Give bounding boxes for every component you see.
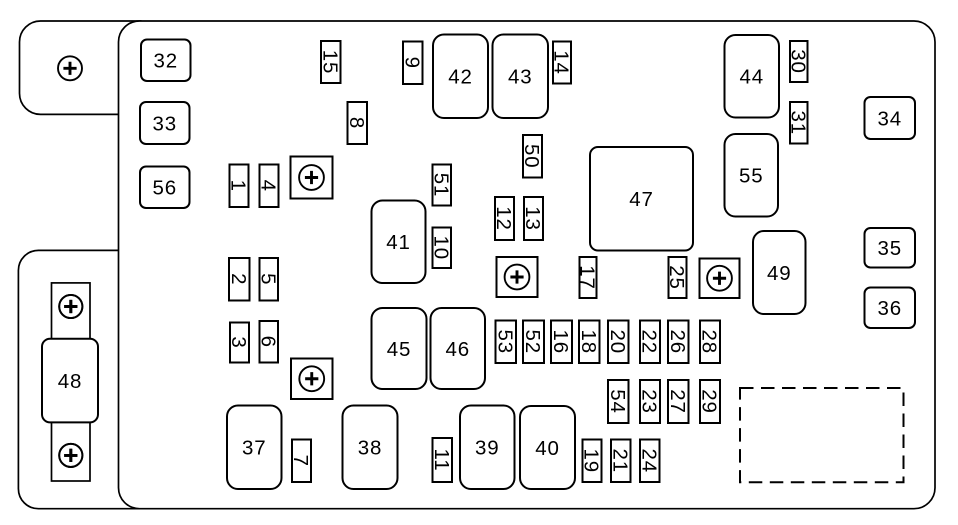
svg-text:36: 36 (877, 297, 902, 320)
svg-text:55: 55 (739, 165, 764, 188)
svg-text:40: 40 (535, 437, 560, 460)
svg-text:51: 51 (429, 173, 452, 198)
svg-text:14: 14 (550, 50, 573, 75)
svg-text:30: 30 (786, 49, 809, 74)
svg-text:54: 54 (606, 389, 629, 414)
svg-text:7: 7 (289, 455, 312, 467)
svg-text:46: 46 (445, 338, 470, 361)
svg-text:1: 1 (227, 180, 250, 192)
svg-text:53: 53 (493, 329, 516, 354)
svg-text:52: 52 (521, 329, 544, 354)
svg-text:2: 2 (227, 273, 250, 285)
svg-text:11: 11 (430, 448, 453, 471)
svg-text:43: 43 (508, 66, 533, 89)
svg-text:22: 22 (638, 329, 661, 354)
svg-text:16: 16 (549, 329, 572, 354)
svg-text:32: 32 (153, 50, 178, 73)
svg-text:39: 39 (475, 437, 500, 460)
svg-text:9: 9 (400, 57, 423, 69)
svg-text:41: 41 (386, 231, 411, 254)
svg-text:26: 26 (666, 329, 689, 354)
svg-text:23: 23 (638, 389, 661, 414)
svg-text:34: 34 (877, 107, 902, 130)
svg-text:10: 10 (429, 235, 452, 260)
svg-text:21: 21 (608, 448, 631, 473)
svg-text:17: 17 (576, 265, 599, 290)
svg-text:49: 49 (767, 262, 792, 285)
svg-text:15: 15 (318, 50, 341, 75)
svg-text:47: 47 (629, 188, 654, 211)
svg-text:6: 6 (256, 336, 279, 348)
svg-text:5: 5 (256, 273, 279, 285)
svg-text:29: 29 (698, 389, 721, 414)
svg-text:12: 12 (492, 206, 515, 231)
svg-text:24: 24 (637, 448, 660, 473)
svg-text:3: 3 (227, 336, 250, 348)
svg-text:20: 20 (606, 329, 629, 354)
svg-text:45: 45 (387, 338, 412, 361)
svg-text:13: 13 (521, 206, 544, 231)
svg-text:35: 35 (877, 237, 902, 260)
svg-text:4: 4 (257, 180, 280, 192)
svg-text:38: 38 (358, 437, 383, 460)
svg-text:18: 18 (577, 329, 600, 354)
svg-text:25: 25 (665, 265, 688, 290)
svg-text:33: 33 (152, 112, 177, 135)
svg-text:42: 42 (448, 66, 473, 89)
svg-text:37: 37 (242, 437, 267, 460)
svg-text:19: 19 (580, 448, 603, 473)
svg-text:28: 28 (698, 329, 721, 354)
svg-text:56: 56 (152, 177, 177, 200)
svg-text:27: 27 (666, 389, 689, 414)
svg-text:50: 50 (520, 144, 543, 169)
svg-text:48: 48 (58, 370, 83, 393)
svg-text:8: 8 (345, 117, 368, 129)
svg-text:44: 44 (739, 66, 764, 89)
svg-text:31: 31 (786, 110, 809, 135)
